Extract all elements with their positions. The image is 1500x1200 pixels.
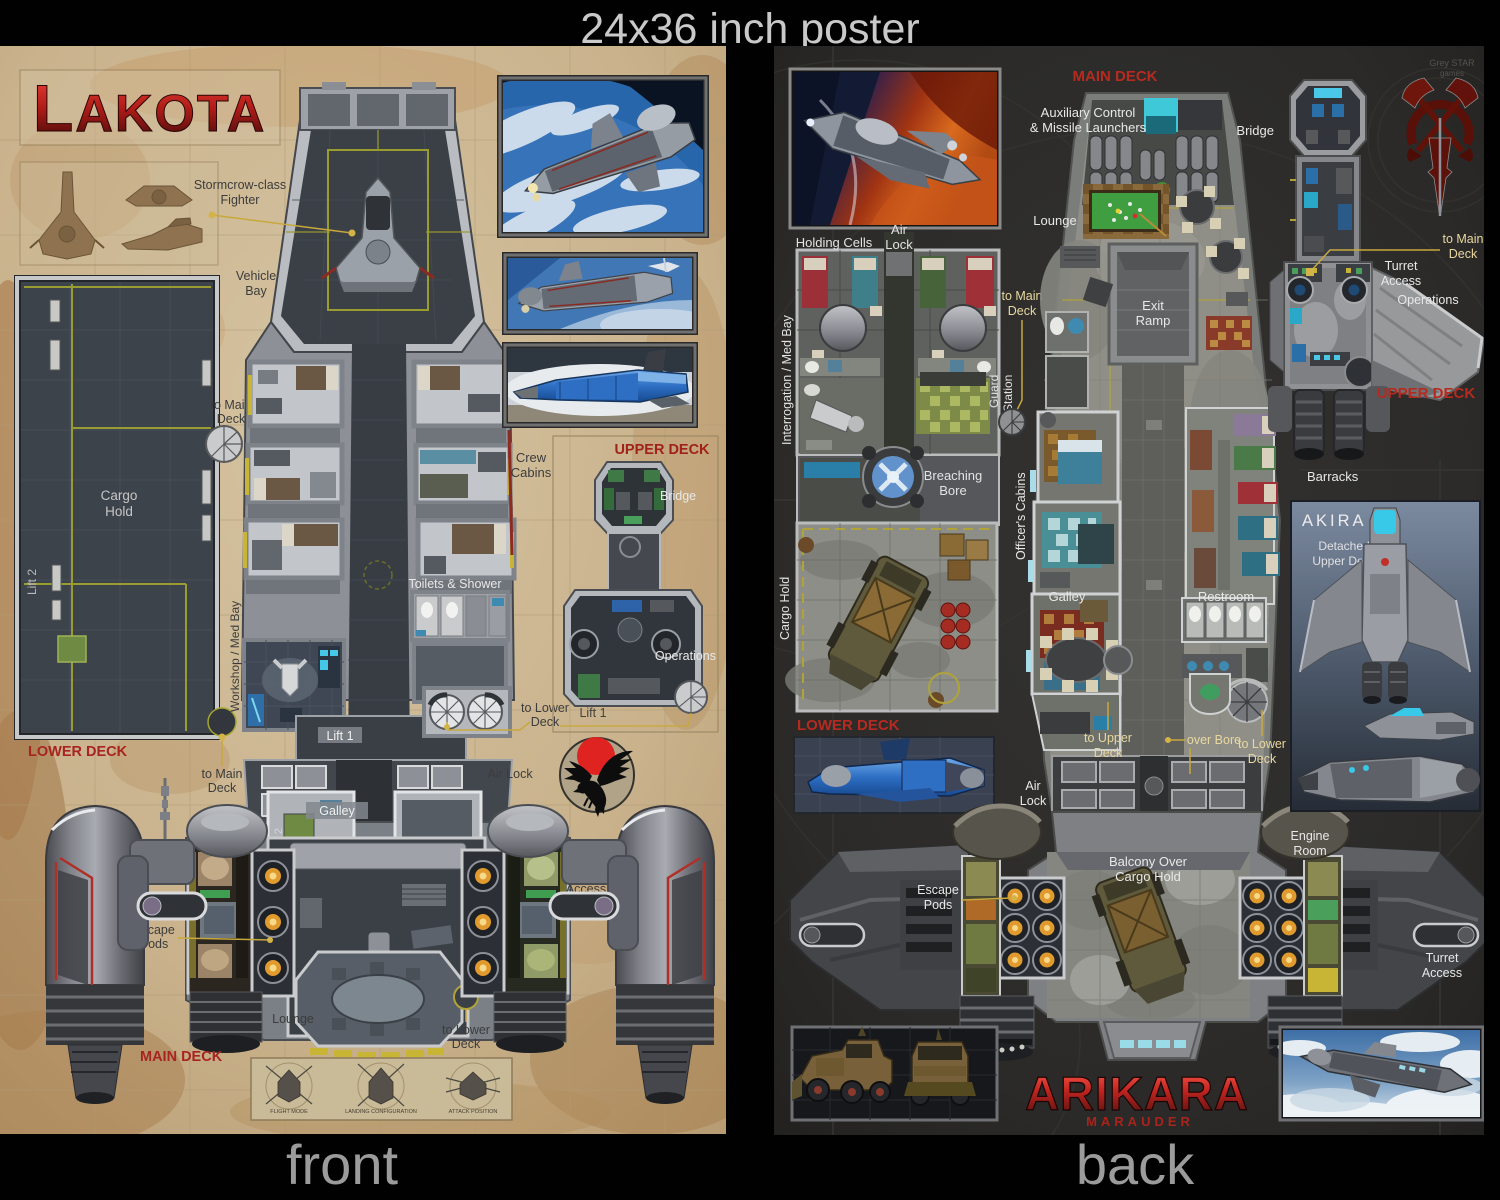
svg-text:Air: Air [891, 222, 908, 237]
svg-text:Deck: Deck [1248, 752, 1277, 766]
svg-text:24x36 inch poster: 24x36 inch poster [580, 5, 919, 53]
svg-text:to Lower: to Lower [521, 701, 569, 715]
svg-text:to Lower: to Lower [1238, 737, 1286, 751]
svg-text:Turret: Turret [1385, 259, 1418, 273]
svg-text:Station: Station [1001, 375, 1015, 412]
svg-text:Detached: Detached [1318, 539, 1369, 553]
svg-text:Deck: Deck [208, 781, 237, 795]
svg-text:Breaching: Breaching [924, 468, 983, 483]
svg-text:LOWER DECK: LOWER DECK [28, 744, 128, 760]
svg-text:Lock: Lock [1020, 794, 1047, 808]
svg-text:FLIGHT MODE: FLIGHT MODE [270, 1109, 308, 1115]
svg-text:Engine: Engine [1291, 829, 1330, 843]
svg-text:Deck: Deck [531, 715, 560, 729]
svg-text:Operations: Operations [655, 649, 716, 663]
svg-text:Bay: Bay [245, 284, 267, 298]
svg-text:Room: Room [1293, 844, 1326, 858]
svg-text:MARAUDER: MARAUDER [1086, 1114, 1194, 1129]
svg-text:Galley: Galley [1049, 589, 1086, 604]
svg-text:Exit: Exit [1142, 298, 1164, 313]
svg-text:Access: Access [1381, 274, 1421, 288]
svg-text:MAIN DECK: MAIN DECK [1073, 68, 1158, 85]
svg-text:Grey STAR: Grey STAR [1429, 58, 1475, 68]
svg-text:UPPER DECK: UPPER DECK [1377, 385, 1476, 402]
svg-text:to Main: to Main [1002, 289, 1043, 303]
svg-text:Ramp: Ramp [1136, 313, 1171, 328]
svg-text:Officer's Cabins: Officer's Cabins [1014, 472, 1028, 560]
svg-text:Air: Air [1025, 779, 1040, 793]
svg-text:Balcony Over: Balcony Over [1109, 854, 1188, 869]
svg-text:Vehicle: Vehicle [236, 269, 276, 283]
svg-text:UPPER DECK: UPPER DECK [614, 442, 710, 458]
svg-text:Cargo Hold: Cargo Hold [1115, 869, 1181, 884]
svg-text:Operations: Operations [1397, 293, 1458, 307]
svg-text:Air Lock: Air Lock [487, 767, 533, 781]
svg-text:ATTACK POSITION: ATTACK POSITION [449, 1109, 498, 1115]
svg-text:Galley: Galley [319, 804, 355, 818]
svg-text:ARIKARA: ARIKARA [1025, 1067, 1249, 1120]
svg-text:Lift 1: Lift 1 [579, 706, 606, 720]
svg-text:Cargo: Cargo [101, 488, 138, 503]
svg-text:Hold: Hold [105, 504, 133, 519]
svg-text:games: games [1440, 69, 1464, 78]
svg-text:Guard: Guard [987, 375, 1001, 408]
svg-text:Barracks: Barracks [1307, 469, 1359, 484]
svg-text:Cabins: Cabins [511, 465, 552, 480]
svg-text:Access: Access [1422, 966, 1462, 980]
svg-text:front: front [286, 1133, 398, 1196]
svg-text:to Main: to Main [1443, 232, 1484, 246]
svg-text:Pods: Pods [924, 898, 953, 912]
svg-text:Interrogation / Med Bay: Interrogation / Med Bay [780, 314, 794, 445]
svg-text:Bridge: Bridge [1236, 123, 1274, 138]
svg-text:Restroom: Restroom [1198, 589, 1254, 604]
svg-text:Bore: Bore [939, 483, 966, 498]
svg-text:Deck: Deck [452, 1037, 481, 1051]
svg-text:Lounge: Lounge [1033, 213, 1076, 228]
svg-text:Stormcrow-class: Stormcrow-class [194, 178, 286, 192]
svg-text:Lounge: Lounge [272, 1012, 314, 1026]
svg-text:AKIRA: AKIRA [1302, 512, 1367, 530]
svg-text:Lock: Lock [885, 237, 913, 252]
svg-text:Deck: Deck [1094, 746, 1123, 760]
svg-text:Bridge: Bridge [660, 489, 696, 503]
svg-text:over Bore: over Bore [1187, 733, 1241, 747]
svg-text:Turret: Turret [1426, 951, 1459, 965]
svg-text:Workshop / Med Bay: Workshop / Med Bay [228, 601, 242, 712]
svg-text:Lift 1: Lift 1 [326, 729, 353, 743]
svg-text:Toilets & Shower: Toilets & Shower [408, 577, 501, 591]
svg-text:MAIN DECK: MAIN DECK [140, 1049, 223, 1065]
svg-text:Escape: Escape [917, 883, 959, 897]
svg-text:LANDING CONFIGURATION: LANDING CONFIGURATION [345, 1109, 417, 1115]
svg-text:to Main: to Main [202, 767, 243, 781]
svg-text:to Lower: to Lower [442, 1023, 490, 1037]
svg-text:& Missile Launchers: & Missile Launchers [1030, 120, 1147, 135]
svg-text:back: back [1076, 1133, 1195, 1196]
svg-text:to Upper: to Upper [1084, 731, 1132, 745]
svg-text:Crew: Crew [516, 450, 547, 465]
svg-text:Lift 2: Lift 2 [25, 569, 39, 595]
svg-text:Cargo Hold: Cargo Hold [778, 577, 792, 640]
svg-text:Fighter: Fighter [221, 193, 260, 207]
svg-text:LOWER DECK: LOWER DECK [797, 717, 900, 734]
svg-text:Deck: Deck [1008, 304, 1037, 318]
svg-text:Auxiliary Control: Auxiliary Control [1041, 105, 1136, 120]
svg-text:Holding Cells: Holding Cells [796, 235, 873, 250]
svg-text:Deck: Deck [1449, 247, 1478, 261]
svg-text:Deck: Deck [217, 412, 246, 426]
